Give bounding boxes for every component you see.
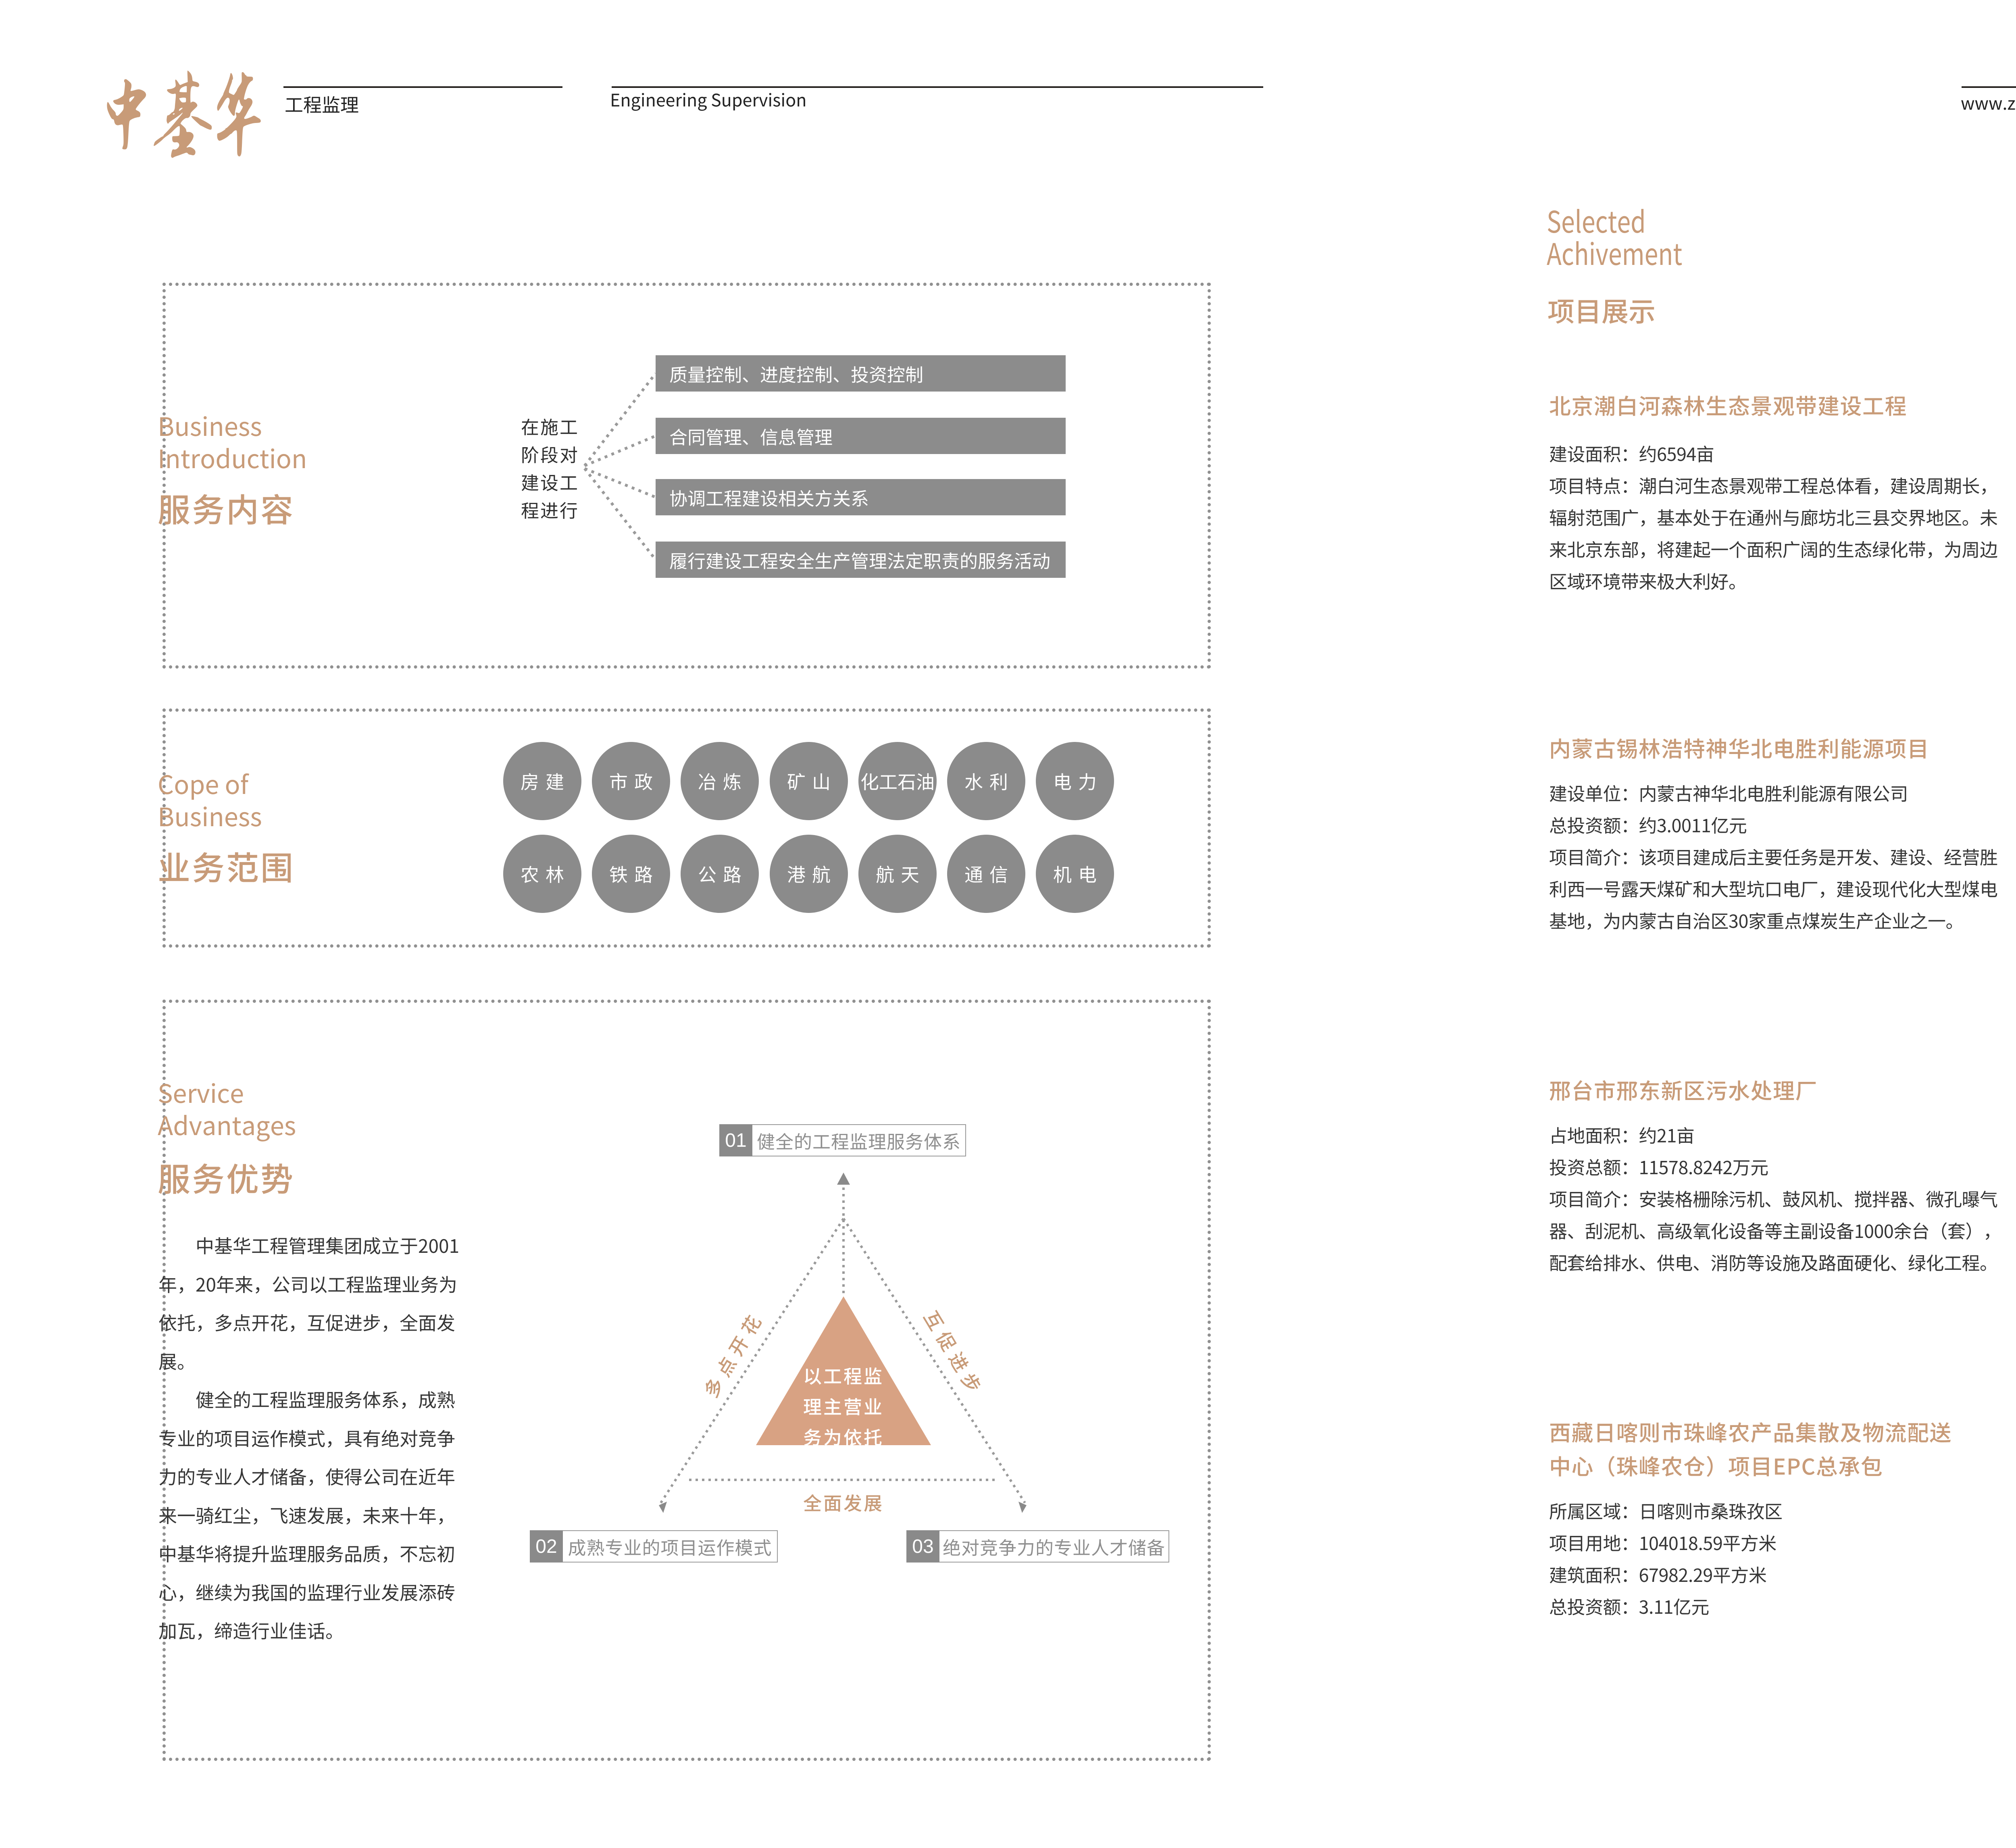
svg-text:务为依托: 务为依托 (803, 1423, 884, 1450)
svg-text:多点开花: 多点开花 (697, 1305, 769, 1402)
svg-text:理主营业: 理主营业 (803, 1393, 884, 1419)
svg-text:以工程监: 以工程监 (803, 1362, 884, 1389)
svg-text:互促进步: 互促进步 (918, 1305, 991, 1402)
svg-text:全面发展: 全面发展 (803, 1489, 884, 1516)
